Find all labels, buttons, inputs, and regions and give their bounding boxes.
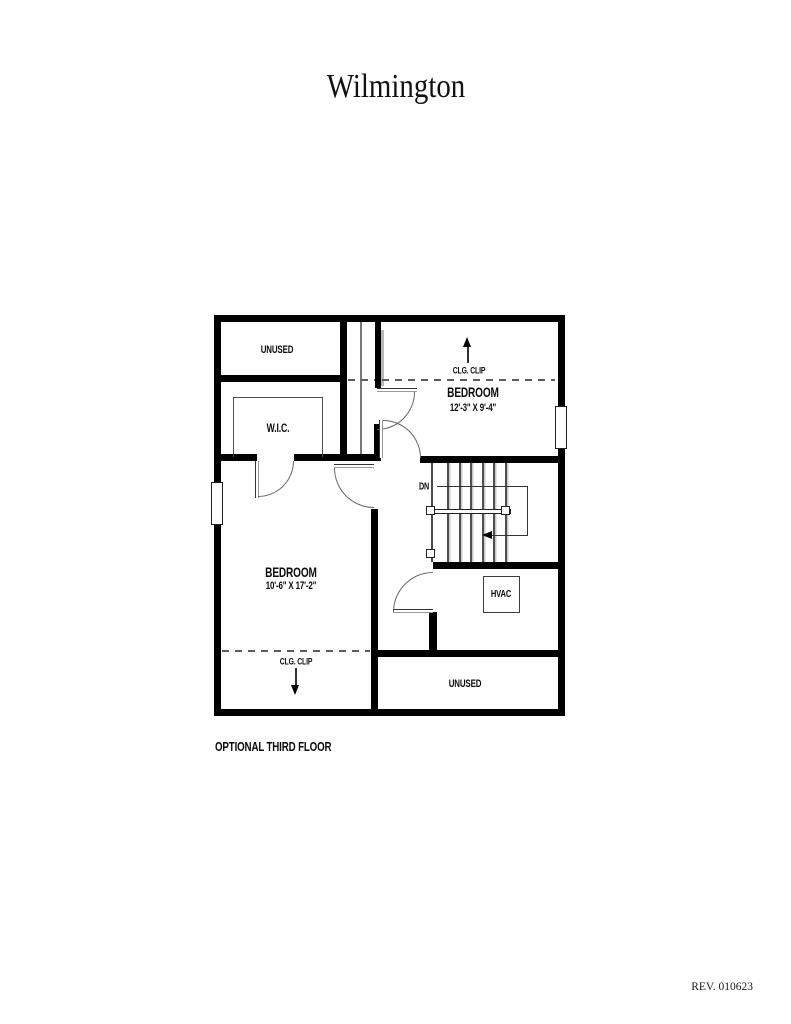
window-right <box>555 406 567 449</box>
wall-stairs-bottom <box>433 562 558 569</box>
stair-newel-post <box>501 506 510 515</box>
room-label-wic: W.I.C. <box>267 421 290 435</box>
dn-route-line <box>489 535 528 536</box>
clg-clip-arrow-line <box>467 346 469 363</box>
hvac-door-swing-arc <box>393 572 433 612</box>
room-label-unused-top: UNUSED <box>261 344 294 356</box>
room-label-hvac: HVAC <box>491 588 511 600</box>
outer-wall-right <box>558 315 565 716</box>
page-title: Wilmington <box>327 68 466 106</box>
dn-route-line <box>527 486 528 536</box>
room-label-bedroom-left: BEDROOM <box>265 564 317 580</box>
up-arrow-icon <box>463 337 471 347</box>
outer-wall-bottom <box>214 709 565 716</box>
stair-newel-post <box>426 506 435 515</box>
clg-clip-dash-top <box>382 379 555 381</box>
wall-closet-left <box>340 322 347 461</box>
wall-unused-top-bottom <box>221 375 347 382</box>
stair-handrail <box>430 509 511 514</box>
room-dims-bedroom-right: 12'-3" X 9'-4" <box>450 402 496 414</box>
wall-shadow-line <box>381 330 384 386</box>
clg-clip-label-bottom: CLG. CLIP <box>280 657 313 668</box>
bedroom-left-door-swing-arc <box>334 468 374 508</box>
wall-unused-bottom-top <box>371 650 558 657</box>
room-label-bedroom-right: BEDROOM <box>447 384 499 400</box>
wic-door-swing-arc <box>258 461 294 497</box>
clg-clip-label-top: CLG. CLIP <box>453 366 486 377</box>
window-left <box>211 482 223 525</box>
hall-door-swing-arc <box>383 420 421 458</box>
dn-route-arrow-icon <box>482 531 492 539</box>
closet-rod-line <box>360 322 362 454</box>
revision-stamp: REV. 010623 <box>691 981 753 993</box>
down-arrow-icon <box>291 685 299 695</box>
clg-clip-dash-bottom <box>222 650 370 652</box>
outer-wall-top <box>214 315 565 322</box>
wall-stairs-top <box>420 456 558 463</box>
floor-plan-page: Wilmington <box>0 0 791 1024</box>
room-label-unused-bottom: UNUSED <box>449 678 482 690</box>
stair-newel-post <box>426 549 435 558</box>
room-dims-bedroom-left: 10'-6" X 17'-2" <box>266 580 317 592</box>
stairs-dn-label: DN <box>419 482 429 493</box>
clg-clip-arrow-line <box>295 668 297 685</box>
plan-caption: OPTIONAL THIRD FLOOR <box>215 740 331 754</box>
clg-clip-dash-closet <box>348 379 375 381</box>
wall-bedroom-right <box>371 509 378 716</box>
dn-route-line <box>437 486 528 487</box>
